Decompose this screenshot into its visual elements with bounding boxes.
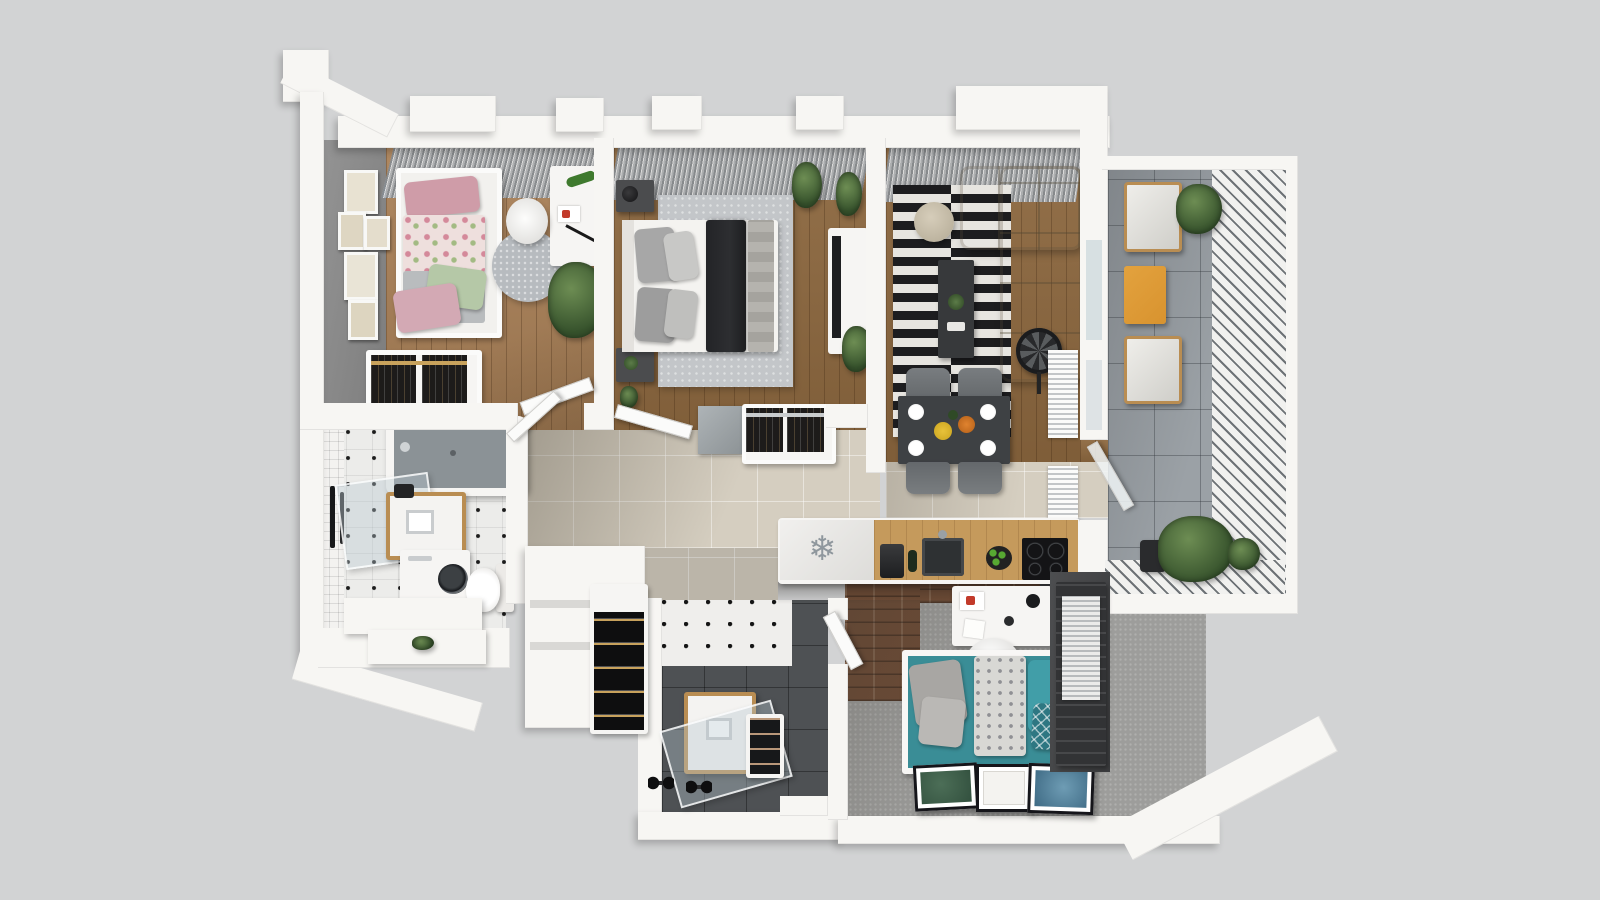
master-wardrobe: [742, 404, 836, 464]
wall-kids-master: [594, 138, 614, 430]
balcony-lounge-chair-top: [1124, 182, 1182, 252]
floor-art-green: [913, 762, 979, 811]
window-glass-slit: [1086, 240, 1102, 340]
window-ledge-box: [652, 96, 702, 130]
wall-kids-bathroom: [300, 403, 518, 430]
master-pillow: [662, 230, 699, 282]
window-glass-slit: [1086, 360, 1102, 430]
wall-stub-master-wardrobe: [826, 404, 868, 428]
kids-pillow-pink-bottom: [392, 282, 462, 333]
kids-wardrobe-rail: [371, 361, 467, 365]
balcony-frame-bottom: [1102, 594, 1298, 614]
nightstand-plant: [624, 356, 638, 370]
master-wardrobe-rail: [746, 413, 824, 417]
window-ledge-box: [796, 96, 844, 130]
balcony-frame-right: [1284, 156, 1298, 608]
washer-door: [438, 564, 468, 594]
dining-table: [898, 396, 1010, 464]
table-lamp: [622, 186, 638, 202]
vanity-sink: [406, 510, 434, 534]
kids-desk-chair: [506, 198, 548, 244]
fridge: ❄: [780, 520, 874, 580]
floor-plan-stage: ❄: [0, 0, 1600, 900]
towel-rail: [330, 486, 335, 548]
master-pillow: [663, 288, 699, 339]
headboard: [622, 220, 634, 352]
kitchen-corridor-floor: [642, 548, 778, 604]
shower-room-step: [780, 796, 828, 816]
office-camera: [1026, 594, 1040, 608]
plate: [980, 440, 996, 456]
kitchen-counter: ❄: [778, 518, 1080, 584]
kids-pillow-pink-top: [403, 175, 480, 219]
washer-panel: [408, 556, 432, 561]
shoe-rack-shelves: [750, 718, 780, 774]
plate: [908, 404, 924, 420]
bathroom-step-upper: [344, 598, 482, 634]
vanity-towel: [394, 484, 414, 498]
office-desk: [952, 586, 1052, 646]
tv: [832, 236, 841, 338]
balcony-orange-table: [1124, 266, 1166, 324]
snowflake-icon: ❄: [808, 532, 837, 566]
wine-bottle: [908, 550, 917, 572]
balcony-frame-top: [1102, 156, 1298, 170]
shower-room-bottom-wall: [638, 812, 843, 840]
coffee-table-plant: [948, 294, 964, 310]
living-radiator-upper: [1048, 350, 1078, 438]
office-radiator: [1062, 596, 1100, 700]
plate: [908, 440, 924, 456]
shoe-rack: [746, 714, 784, 778]
office-shower-wall-bottom: [828, 664, 848, 820]
wine-rack-cabinet: [590, 584, 648, 734]
daybed-patterned-blanket: [974, 656, 1026, 756]
hall-mirror-panel: [698, 406, 742, 454]
master-nightstand-top: [616, 180, 654, 212]
wine-rack-bottles: [594, 612, 644, 730]
kids-single-bed: [396, 168, 502, 338]
master-nightstand-bottom: [616, 348, 654, 382]
tub-faucet: [400, 442, 410, 452]
art-frame: [338, 212, 366, 250]
plate: [980, 404, 996, 420]
black-throw: [706, 220, 746, 352]
outer-wall-left: [300, 92, 324, 667]
office-note: [963, 619, 985, 640]
table-centerpiece: [948, 410, 958, 420]
art-frame: [344, 252, 378, 300]
office-paper-mark: [966, 596, 975, 605]
apple-bowl: [986, 546, 1012, 570]
shower-room-dotted-wall: [662, 600, 792, 666]
floor-art-white: [976, 764, 1032, 812]
window-ledge-box: [410, 96, 496, 132]
balcony-lounge-chair-bottom: [1124, 336, 1182, 404]
pouf: [914, 202, 954, 242]
art-frame: [348, 300, 378, 340]
fruit-bowl: [958, 416, 975, 433]
tub-drain: [450, 450, 456, 456]
coffee-machine: [880, 544, 904, 578]
dumbbell: [648, 776, 674, 790]
sink-faucet: [938, 530, 947, 539]
kitchen-wood-counter: [874, 520, 1078, 580]
fan-stand: [1037, 372, 1041, 394]
dumbbell: [686, 780, 712, 794]
coffee-table: [938, 260, 974, 358]
coffee-table-tray: [947, 322, 965, 331]
lemon-plate: [934, 422, 952, 440]
art-frame: [344, 170, 378, 214]
wall-art-frames: [336, 168, 388, 338]
window-ledge-box: [556, 98, 604, 132]
office-cup: [1004, 616, 1014, 626]
master-double-bed: [622, 220, 778, 352]
kitchen-sink: [922, 538, 964, 576]
desk-paper-mark: [562, 210, 570, 218]
toy-lizard: [565, 170, 597, 189]
step-plant-sprig: [412, 636, 434, 650]
folded-blanket: [748, 220, 774, 352]
wall-master-living: [866, 138, 886, 473]
daybed-pillow-gray-small: [918, 696, 967, 748]
dining-chair: [906, 462, 950, 494]
desk-pen: [565, 224, 596, 243]
art-frame: [364, 216, 390, 250]
dining-chair: [958, 462, 1002, 494]
